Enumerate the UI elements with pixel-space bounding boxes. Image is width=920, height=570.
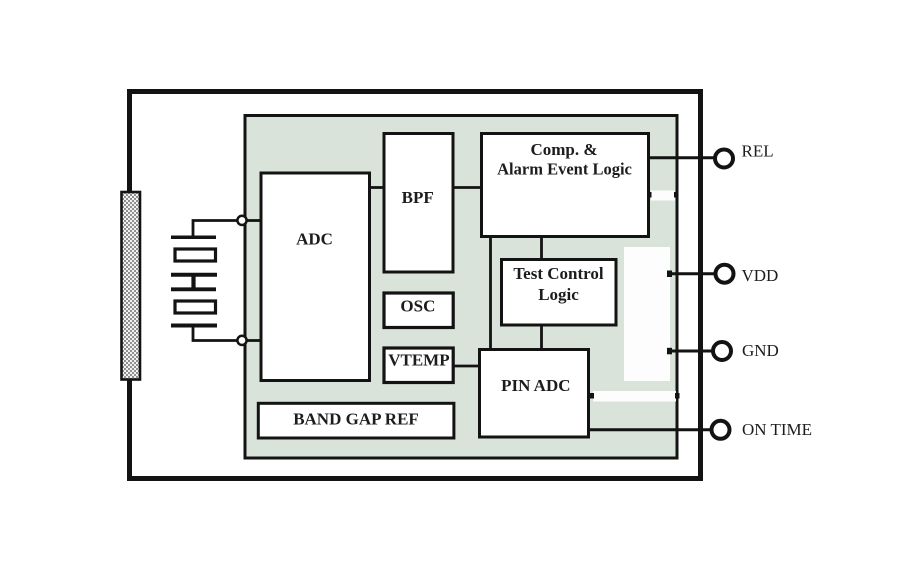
svg-text:Alarm Event Logic: Alarm Event Logic <box>497 159 632 178</box>
svg-text:PIN ADC: PIN ADC <box>501 376 570 395</box>
svg-text:ON TIME: ON TIME <box>742 420 812 439</box>
svg-text:GND: GND <box>742 341 779 360</box>
svg-text:VDD: VDD <box>742 266 779 285</box>
svg-text:VTEMP: VTEMP <box>388 351 449 370</box>
svg-text:BPF: BPF <box>402 188 434 207</box>
svg-text:REL: REL <box>742 141 774 160</box>
svg-text:Logic: Logic <box>538 285 579 304</box>
svg-text:Test Control: Test Control <box>513 264 603 283</box>
svg-text:Comp. &: Comp. & <box>530 140 597 159</box>
svg-text:OSC: OSC <box>400 297 435 316</box>
svg-text:ADC: ADC <box>296 230 333 249</box>
svg-text:BAND GAP REF: BAND GAP REF <box>293 410 419 429</box>
